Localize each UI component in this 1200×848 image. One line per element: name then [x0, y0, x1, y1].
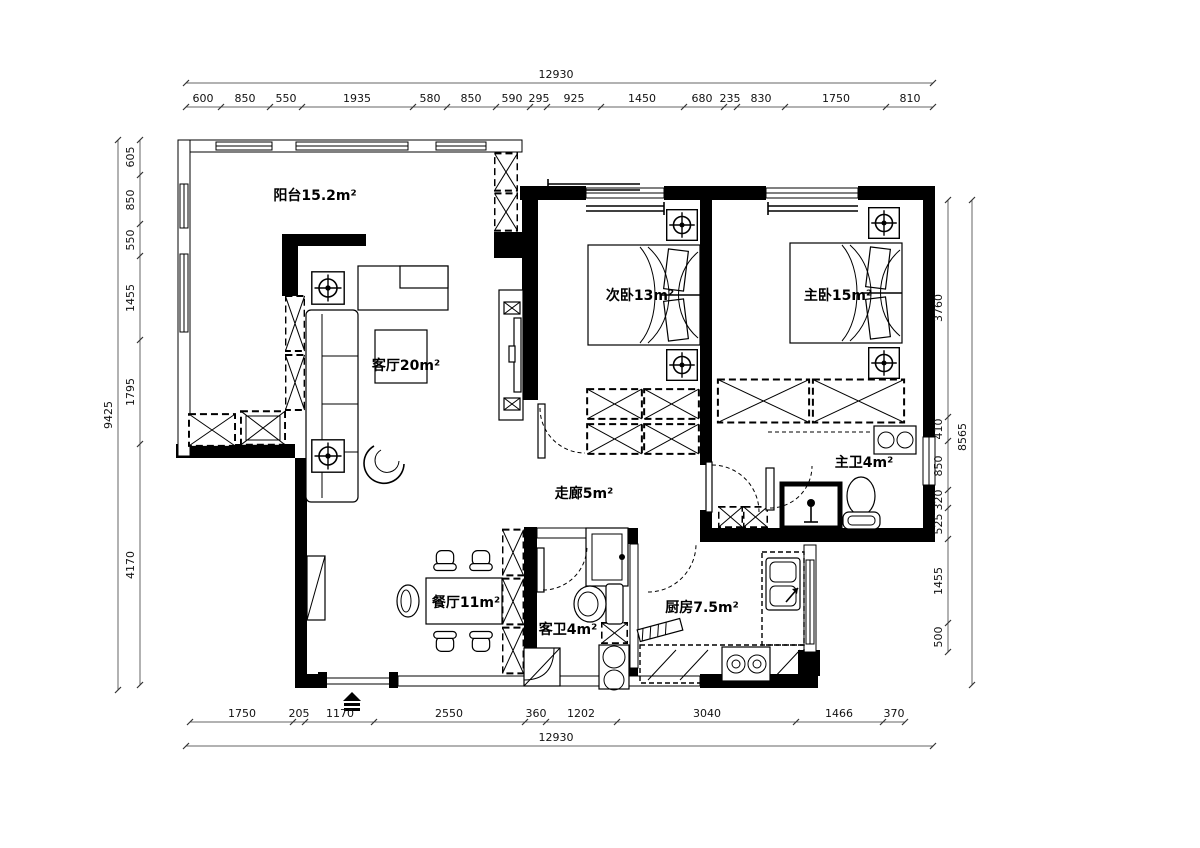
dim-top: 12930 600 850 550 1935 580 850 590 295 9…	[183, 68, 936, 110]
master-window	[766, 188, 858, 198]
svg-text:605: 605	[124, 147, 137, 168]
room-label-living: 客厅20m²	[371, 357, 440, 374]
corridor-wardrobe	[587, 389, 642, 419]
room-label-master: 主卧15m²	[804, 287, 872, 304]
side-table-lamp-icon	[312, 272, 344, 304]
washer-icon	[599, 645, 629, 690]
washbasin-icon	[874, 426, 916, 454]
room-label-dining: 餐厅11m²	[431, 594, 500, 611]
dining-chair	[434, 551, 457, 571]
svg-text:1935: 1935	[343, 92, 371, 105]
svg-text:360: 360	[526, 707, 547, 720]
dining-chair	[434, 631, 457, 651]
tv-console	[499, 290, 523, 420]
room-label-kitchen: 厨房7.5m²	[665, 599, 739, 616]
dining-chair	[470, 631, 493, 651]
svg-text:1450: 1450	[628, 92, 656, 105]
svg-text:3040: 3040	[693, 707, 721, 720]
svg-text:810: 810	[900, 92, 921, 105]
kitchen-window	[806, 560, 814, 644]
svg-text:1466: 1466	[825, 707, 853, 720]
balcony-cabinet-east	[494, 153, 517, 190]
svg-text:320: 320	[932, 490, 945, 511]
room-label-balcony: 阳台15.2m²	[273, 187, 356, 204]
kitchen-fixtures	[637, 552, 804, 683]
svg-text:3760: 3760	[932, 294, 945, 322]
svg-text:1795: 1795	[124, 378, 137, 406]
armchair	[364, 446, 404, 483]
living-room-furniture	[306, 266, 523, 502]
svg-text:205: 205	[289, 707, 310, 720]
svg-text:1455: 1455	[932, 567, 945, 595]
shower-tray-icon	[524, 648, 560, 686]
room-label-bedroom2: 次卧13m²	[606, 287, 674, 304]
nightstand-lamp-icon	[667, 210, 698, 241]
hall-cabinet	[307, 556, 325, 620]
dim-left: 9425 605 850 550 1455 1795 4170	[102, 137, 143, 693]
master-wardrobe	[718, 380, 809, 423]
dim-bottom-total: 12930	[539, 731, 574, 744]
svg-text:235: 235	[720, 92, 741, 105]
svg-text:680: 680	[692, 92, 713, 105]
svg-text:600: 600	[193, 92, 214, 105]
svg-text:370: 370	[884, 707, 905, 720]
svg-text:295: 295	[529, 92, 550, 105]
dim-bottom: 1750 205 1170 2550 360 1202 3040 1466 37…	[183, 707, 936, 749]
sofa	[306, 310, 358, 502]
master-suite-door	[706, 462, 759, 512]
svg-text:550: 550	[124, 230, 137, 251]
dim-left-total: 9425	[102, 401, 115, 429]
dim-right-total: 8565	[956, 423, 969, 451]
svg-text:580: 580	[420, 92, 441, 105]
nightstand-lamp-icon	[869, 348, 900, 379]
kitchen-door	[648, 544, 696, 592]
shower-icon	[782, 484, 840, 528]
svg-text:590: 590	[502, 92, 523, 105]
svg-text:925: 925	[564, 92, 585, 105]
svg-text:850: 850	[461, 92, 482, 105]
dim-left-labels: 605 850 550 1455 1795 4170	[124, 147, 137, 580]
console-table	[358, 266, 448, 310]
dining-tall-cabinet	[502, 530, 523, 576]
svg-text:500: 500	[932, 627, 945, 648]
svg-text:850: 850	[932, 456, 945, 477]
svg-text:1170: 1170	[326, 707, 354, 720]
room-label-guest-bath: 客卫4m²	[538, 621, 597, 638]
floor-plan-page: 阳台15.2m² 客厅20m² 次卧13m² 主卧15m² 主卫4m² 走廊5m…	[0, 0, 1200, 848]
dining-chair	[470, 551, 493, 571]
toilet-icon	[843, 477, 880, 529]
speaker-icon	[504, 398, 520, 410]
floor-plan-drawing: 阳台15.2m² 客厅20m² 次卧13m² 主卧15m² 主卫4m² 走廊5m…	[0, 0, 1200, 848]
balcony-cabinet-south	[189, 414, 235, 446]
master-bath-fixtures	[768, 426, 916, 529]
balcony-window-top-1	[216, 142, 272, 150]
svg-text:410: 410	[932, 419, 945, 440]
svg-text:2550: 2550	[435, 707, 463, 720]
svg-text:850: 850	[235, 92, 256, 105]
dim-right: 3760 410 850 320 525 1455 500 8565	[932, 197, 975, 688]
svg-text:850: 850	[124, 190, 137, 211]
room-label-corridor: 走廊5m²	[555, 485, 613, 502]
balcony-window-top-3	[436, 142, 486, 150]
side-table-lamp-icon	[312, 440, 344, 472]
svg-text:1202: 1202	[567, 707, 595, 720]
svg-text:1750: 1750	[822, 92, 850, 105]
stove-icon	[722, 647, 770, 681]
guest-bath-cabinet	[602, 623, 628, 644]
corridor-small-cabinet	[719, 507, 743, 528]
sink-icon	[766, 558, 800, 610]
svg-text:550: 550	[276, 92, 297, 105]
living-side-cabinet	[285, 296, 304, 351]
toilet-icon	[574, 584, 623, 624]
bedroom2-door	[538, 404, 585, 458]
dim-top-total: 12930	[539, 68, 574, 81]
entrance-door	[327, 678, 389, 684]
dim-bottom-labels: 1750 205 1170 2550 360 1202 3040 1466 37…	[228, 707, 905, 720]
svg-text:4170: 4170	[124, 551, 137, 579]
washbasin-icon	[586, 528, 628, 586]
nightstand-lamp-icon	[869, 208, 900, 239]
guest-bath-door	[537, 546, 587, 592]
svg-text:525: 525	[932, 514, 945, 535]
balcony-window-left-2	[180, 254, 188, 332]
cutting-board-icon	[637, 619, 683, 642]
balcony-window-left-1	[180, 184, 188, 228]
dining-chair	[397, 585, 419, 617]
svg-text:1455: 1455	[124, 284, 137, 312]
balcony-window-top-2	[296, 142, 408, 150]
svg-text:1750: 1750	[228, 707, 256, 720]
coffee-table	[375, 330, 427, 383]
nightstand-lamp-icon	[667, 350, 698, 381]
room-label-master-bath: 主卫4m²	[835, 454, 893, 471]
speaker-icon	[504, 302, 520, 314]
dim-top-labels: 600 850 550 1935 580 850 590 295 925 145…	[193, 92, 921, 105]
svg-text:830: 830	[751, 92, 772, 105]
